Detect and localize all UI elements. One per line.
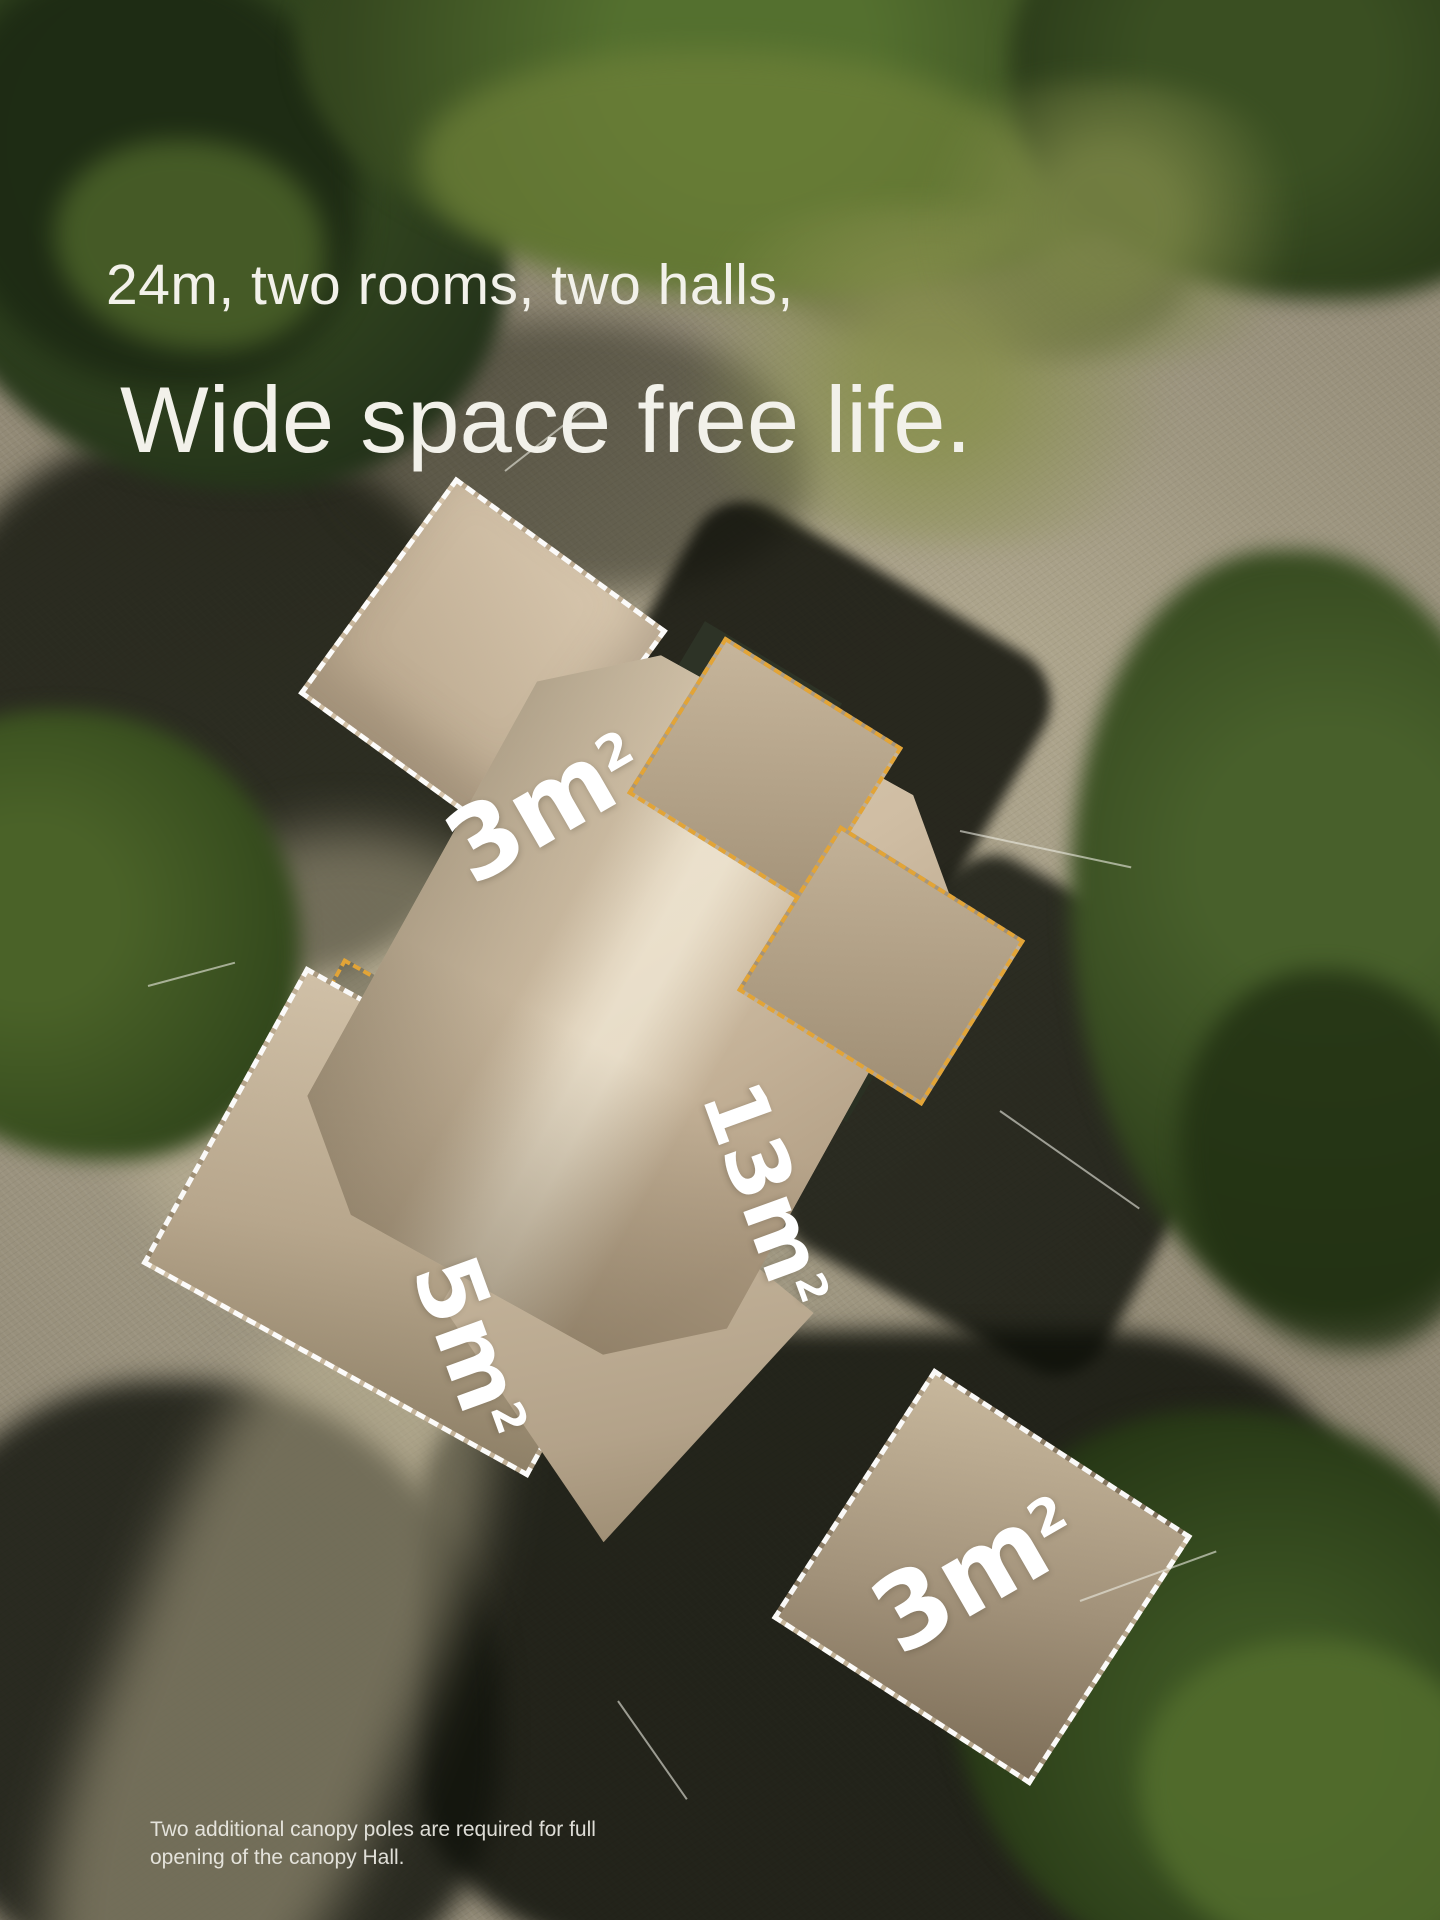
pine-trees-bottom-right-light: [1140, 1640, 1440, 1920]
footnote-line1: Two additional canopy poles are required…: [150, 1816, 596, 1844]
footnote: Two additional canopy poles are required…: [150, 1816, 596, 1873]
tent-aerial-poster: 3m2 13m2 5m2 3m2 24m, two rooms, two hal…: [0, 0, 1440, 1920]
headline-line1: 24m, two rooms, two halls,: [106, 252, 794, 318]
footnote-line2: opening of the canopy Hall.: [150, 1844, 596, 1872]
headline-line2: Wide space free life.: [120, 366, 972, 474]
